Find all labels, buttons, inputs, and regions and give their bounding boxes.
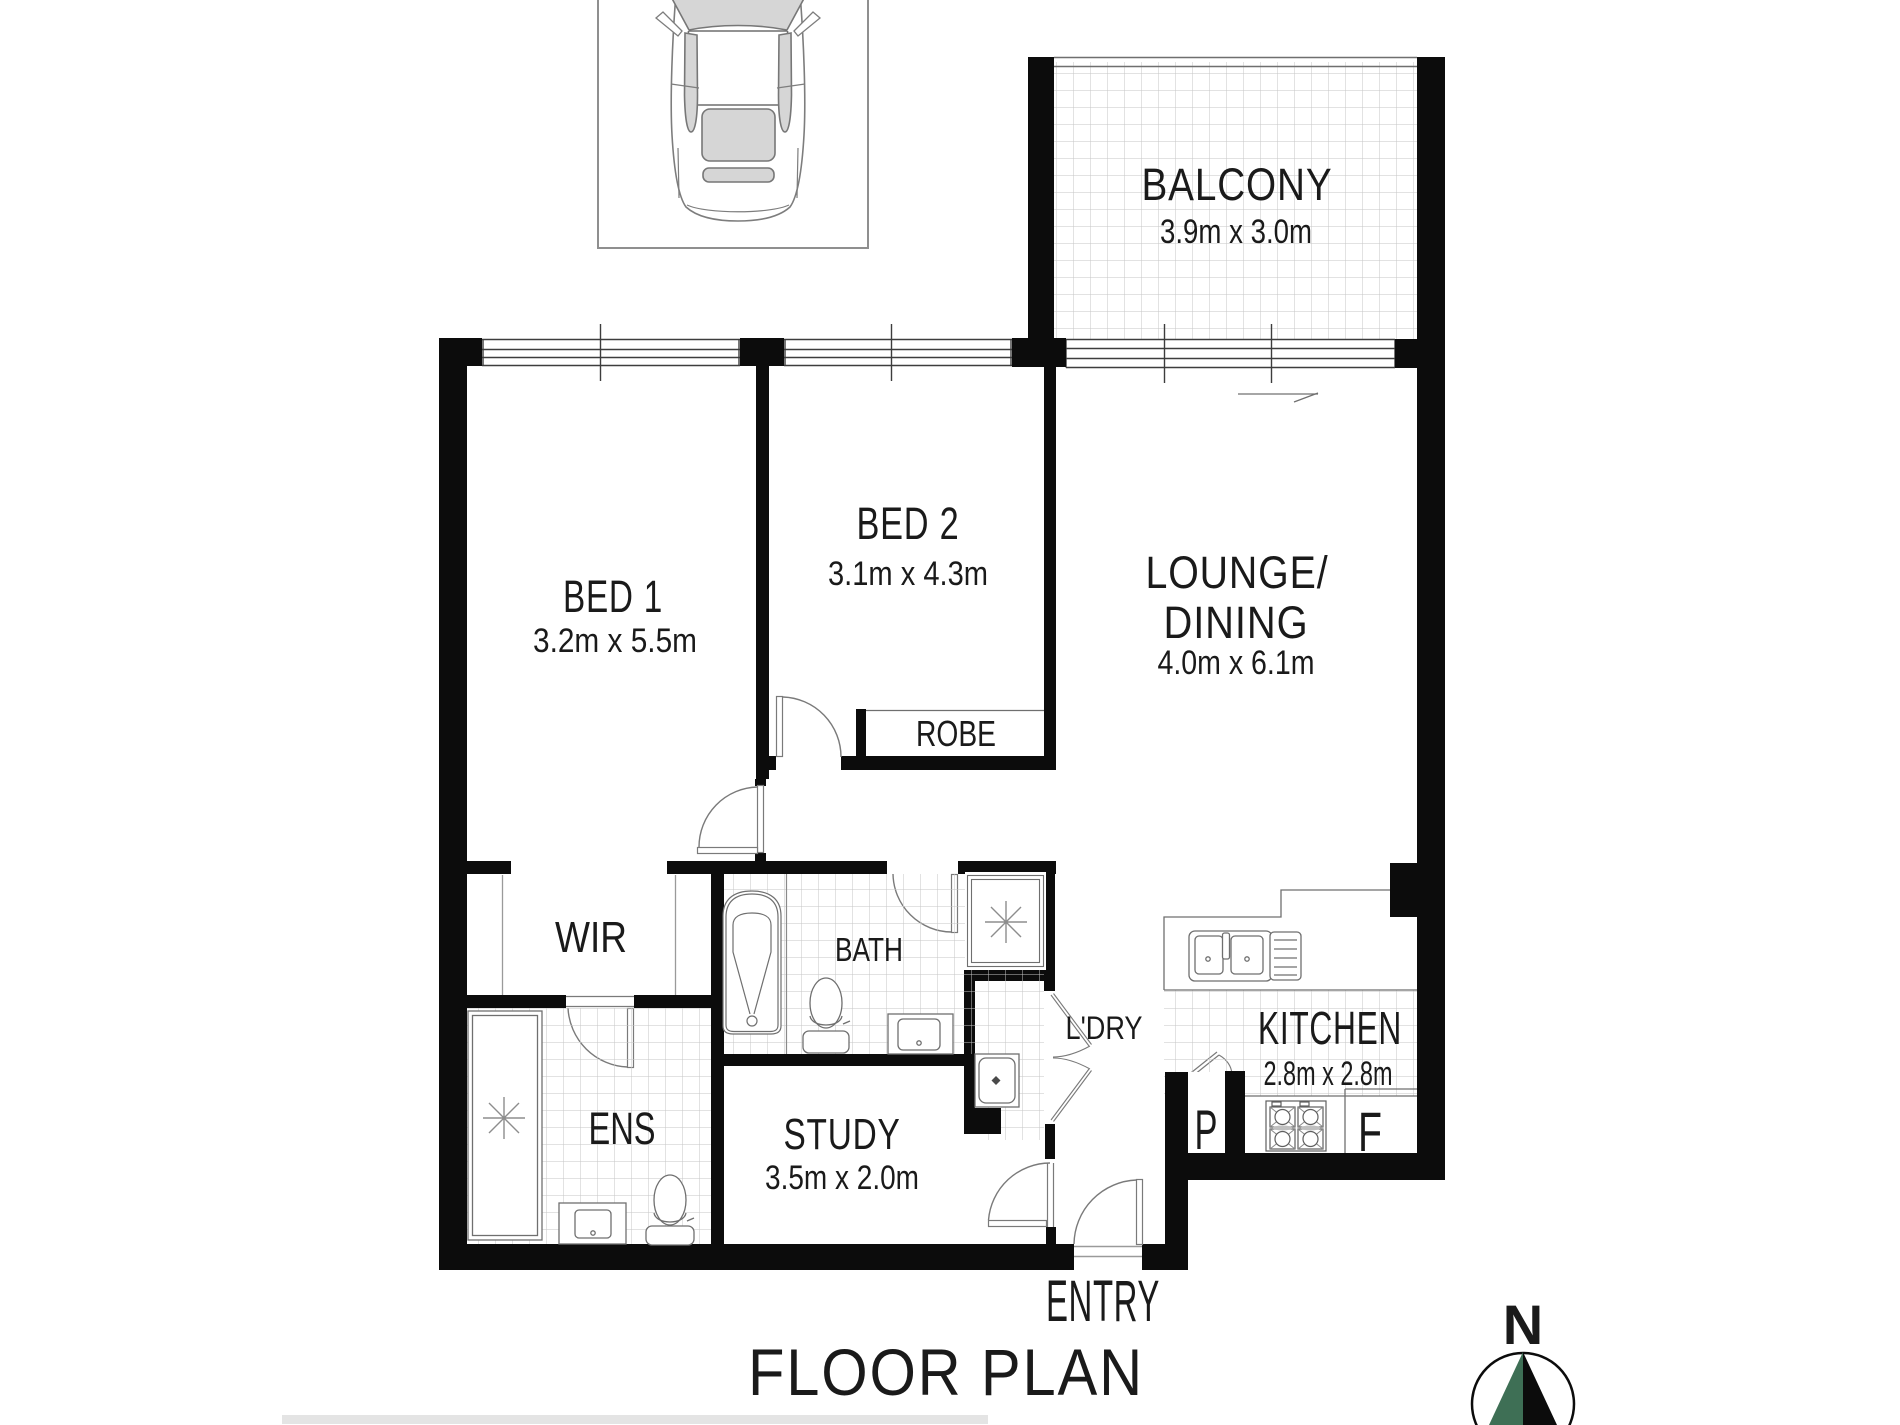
svg-text:DINING: DINING bbox=[1164, 597, 1309, 648]
svg-text:STUDY: STUDY bbox=[784, 1110, 901, 1159]
svg-text:ROBE: ROBE bbox=[916, 713, 996, 754]
svg-text:N: N bbox=[1503, 1293, 1543, 1356]
svg-text:4.0m x 6.1m: 4.0m x 6.1m bbox=[1158, 644, 1315, 682]
svg-text:P: P bbox=[1195, 1098, 1218, 1161]
svg-text:2.8m x 2.8m: 2.8m x 2.8m bbox=[1264, 1055, 1393, 1093]
svg-text:KITCHEN: KITCHEN bbox=[1258, 1002, 1402, 1054]
svg-text:3.5m x 2.0m: 3.5m x 2.0m bbox=[765, 1159, 919, 1197]
svg-text:3.9m x 3.0m: 3.9m x 3.0m bbox=[1160, 213, 1312, 251]
svg-text:BALCONY: BALCONY bbox=[1142, 159, 1333, 210]
svg-text:BED 2: BED 2 bbox=[857, 498, 960, 549]
svg-text:3.1m x 4.3m: 3.1m x 4.3m bbox=[828, 555, 988, 593]
svg-text:WIR: WIR bbox=[555, 913, 627, 962]
svg-text:LOUNGE/: LOUNGE/ bbox=[1146, 547, 1329, 598]
svg-text:3.2m x 5.5m: 3.2m x 5.5m bbox=[533, 622, 697, 660]
svg-text:FLOOR PLAN: FLOOR PLAN bbox=[748, 1335, 1144, 1409]
svg-text:L'DRY: L'DRY bbox=[1066, 1010, 1143, 1046]
svg-text:ENS: ENS bbox=[589, 1103, 656, 1154]
svg-text:BED 1: BED 1 bbox=[563, 571, 663, 622]
svg-text:BATH: BATH bbox=[835, 931, 903, 968]
svg-text:F: F bbox=[1358, 1100, 1382, 1163]
svg-text:ENTRY: ENTRY bbox=[1046, 1269, 1160, 1334]
